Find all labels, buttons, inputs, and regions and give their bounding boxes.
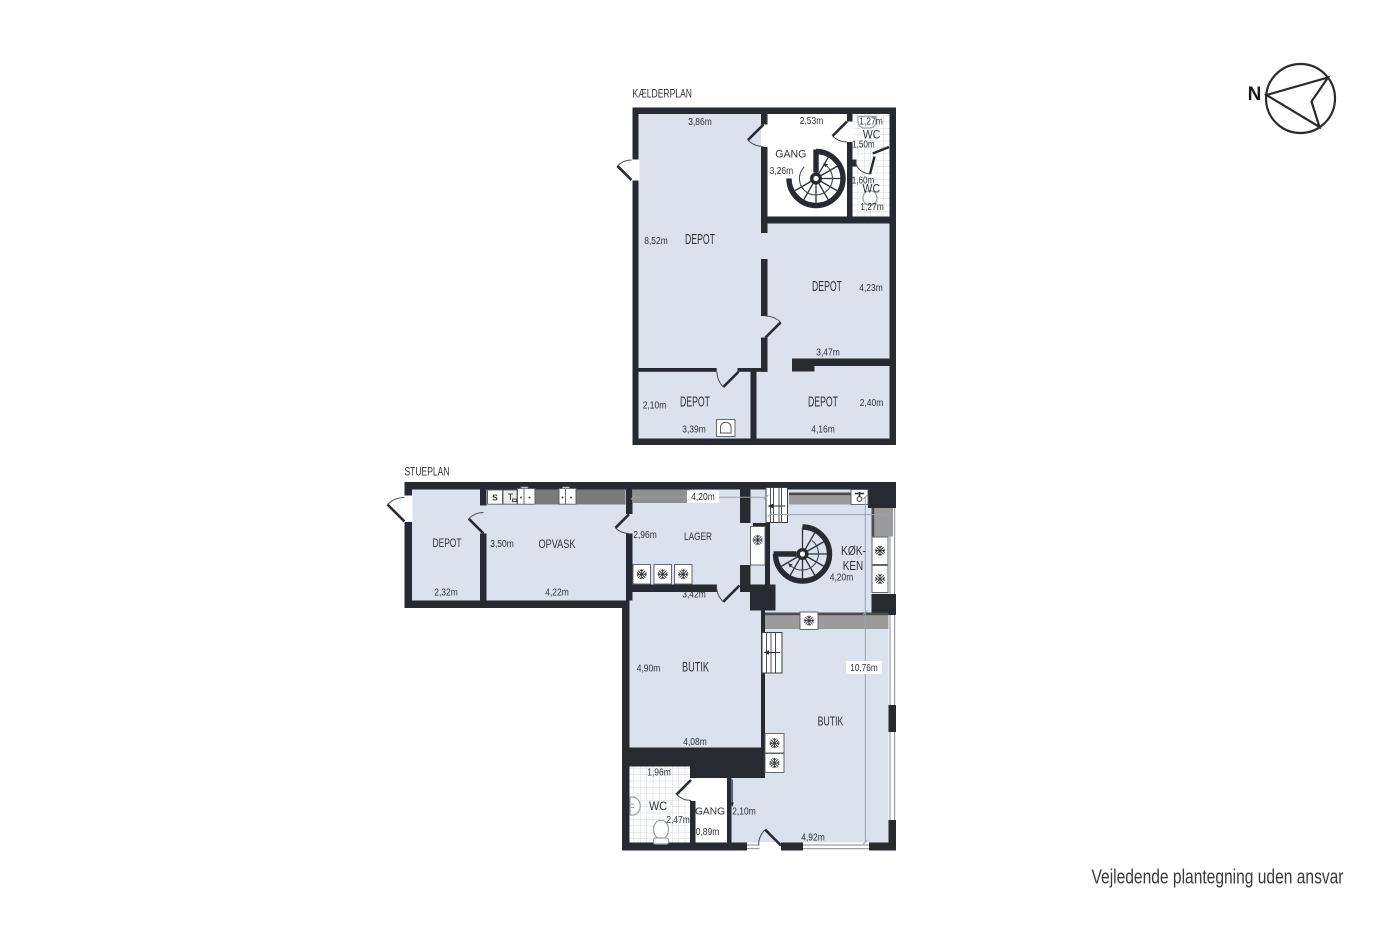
svg-text:STUEPLAN: STUEPLAN (405, 465, 450, 479)
svg-text:N: N (1248, 84, 1262, 105)
svg-text:DEPOT: DEPOT (680, 395, 710, 411)
svg-text:DEPOT: DEPOT (433, 536, 462, 550)
svg-text:DEPOT: DEPOT (812, 279, 842, 295)
svg-text:3,86m: 3,86m (688, 117, 712, 128)
svg-text:4,20m: 4,20m (691, 492, 715, 503)
svg-text:4,08m: 4,08m (683, 737, 707, 748)
svg-text:DEPOT: DEPOT (685, 232, 715, 248)
svg-text:3,39m: 3,39m (682, 425, 706, 436)
svg-text:S: S (492, 492, 498, 502)
svg-text:KØK-: KØK- (841, 544, 866, 558)
svg-text:4,20m: 4,20m (830, 573, 854, 584)
svg-text:KEN: KEN (843, 559, 864, 573)
svg-text:4,22m: 4,22m (545, 588, 569, 599)
svg-text:WC: WC (863, 183, 881, 195)
svg-text:BUTIK: BUTIK (682, 660, 710, 675)
svg-text:3,42m: 3,42m (682, 590, 706, 601)
svg-text:1,27m: 1,27m (860, 202, 884, 213)
svg-text:KÆLDERPLAN: KÆLDERPLAN (633, 87, 693, 101)
svg-text:WC: WC (649, 801, 667, 813)
svg-text:4,92m: 4,92m (801, 833, 825, 844)
svg-text:1,96m: 1,96m (647, 767, 671, 778)
svg-text:0,89m: 0,89m (696, 827, 720, 838)
svg-text:4,23m: 4,23m (859, 283, 883, 294)
svg-text:4,90m: 4,90m (637, 664, 661, 675)
svg-text:1,50m: 1,50m (852, 139, 875, 150)
svg-text:GANG: GANG (695, 807, 725, 818)
svg-text:1,27m: 1,27m (859, 117, 883, 128)
svg-text:3,26m: 3,26m (770, 166, 794, 177)
svg-text:DEPOT: DEPOT (808, 395, 838, 411)
svg-text:2,40m: 2,40m (860, 398, 884, 409)
svg-text:Vejledende plantegning uden an: Vejledende plantegning uden ansvar (1092, 867, 1344, 889)
svg-text:GANG: GANG (775, 148, 806, 160)
svg-text:OPVASK: OPVASK (539, 538, 576, 551)
svg-text:2,53m: 2,53m (800, 116, 824, 127)
svg-text:2,10m: 2,10m (732, 807, 756, 818)
svg-text:2,10m: 2,10m (643, 401, 667, 412)
svg-text:8,52m: 8,52m (644, 236, 668, 247)
svg-text:2,32m: 2,32m (434, 588, 458, 599)
svg-text:10,76m: 10,76m (850, 663, 878, 674)
svg-text:3,47m: 3,47m (816, 348, 840, 359)
svg-text:3,50m: 3,50m (490, 539, 514, 550)
svg-text:2,47m: 2,47m (666, 815, 690, 826)
svg-text:2,96m: 2,96m (633, 530, 657, 541)
svg-text:BUTIK: BUTIK (818, 714, 844, 729)
svg-text:LAGER: LAGER (684, 531, 712, 543)
svg-text:4,16m: 4,16m (811, 425, 835, 436)
